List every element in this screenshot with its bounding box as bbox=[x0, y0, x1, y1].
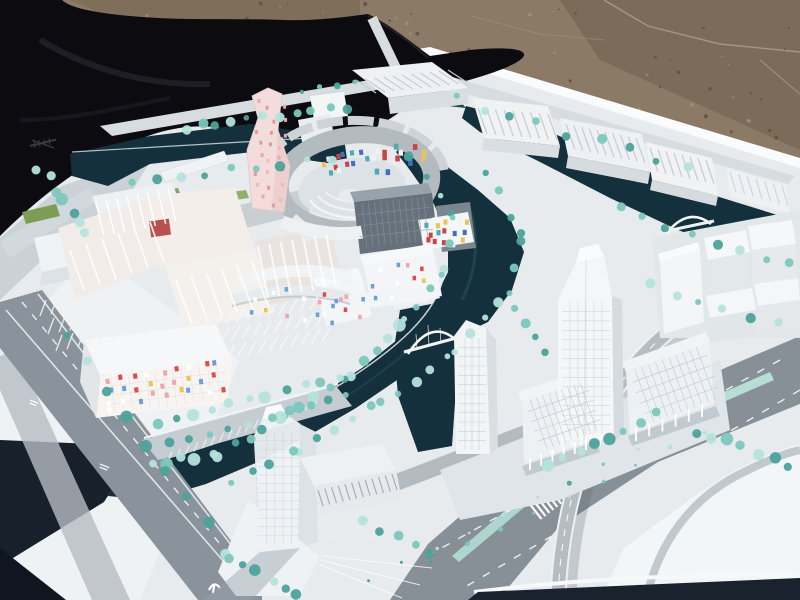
mosaic-tile bbox=[461, 238, 465, 243]
tree bbox=[224, 426, 231, 433]
mosaic-tile bbox=[272, 291, 276, 296]
mosaic-tile bbox=[442, 228, 446, 233]
mosaic-tile bbox=[284, 134, 287, 138]
tree bbox=[493, 297, 503, 307]
tree bbox=[692, 429, 701, 438]
tree bbox=[482, 315, 488, 321]
tree bbox=[695, 299, 701, 305]
tree bbox=[376, 398, 384, 406]
mosaic-tile bbox=[256, 183, 259, 187]
tree bbox=[153, 419, 164, 430]
tree bbox=[187, 409, 199, 421]
mosaic-tile bbox=[382, 154, 387, 160]
gravel-speckle bbox=[363, 2, 367, 6]
mosaic-tile bbox=[160, 383, 165, 389]
tree bbox=[120, 411, 132, 423]
mosaic-tile bbox=[107, 407, 112, 413]
gravel-speckle bbox=[409, 32, 412, 35]
tree bbox=[367, 579, 370, 582]
tree bbox=[495, 186, 503, 194]
tree bbox=[412, 541, 420, 549]
mosaic-tile bbox=[106, 401, 111, 407]
tree bbox=[400, 561, 403, 564]
tree bbox=[375, 527, 384, 536]
tree bbox=[507, 214, 514, 221]
mosaic-tile bbox=[144, 372, 149, 378]
mosaic-tile bbox=[345, 161, 350, 167]
tree bbox=[706, 433, 717, 444]
gravel-speckle bbox=[287, 4, 289, 6]
tree bbox=[199, 118, 209, 128]
tree bbox=[232, 439, 240, 447]
mosaic-tile bbox=[395, 156, 400, 162]
tree bbox=[516, 237, 525, 246]
tree bbox=[668, 444, 673, 449]
tree bbox=[445, 239, 454, 248]
tree bbox=[521, 318, 531, 328]
tree bbox=[430, 560, 434, 564]
tree bbox=[306, 107, 315, 116]
mosaic-tile bbox=[163, 370, 168, 376]
mosaic-tile bbox=[261, 153, 264, 157]
tree bbox=[185, 435, 193, 443]
tree bbox=[359, 356, 369, 366]
tree bbox=[424, 174, 430, 180]
mosaic-tile bbox=[426, 237, 430, 242]
tree bbox=[541, 349, 549, 357]
tree bbox=[511, 305, 518, 312]
tree bbox=[637, 448, 640, 451]
tree bbox=[334, 82, 341, 89]
tree bbox=[367, 401, 376, 410]
tree bbox=[291, 589, 302, 600]
tree bbox=[542, 459, 555, 472]
mosaic-tile bbox=[413, 276, 417, 281]
gravel-speckle bbox=[768, 129, 771, 132]
tree bbox=[315, 378, 325, 388]
mosaic-tile bbox=[339, 297, 343, 302]
mosaic-tile bbox=[344, 308, 348, 313]
mosaic-tile bbox=[322, 162, 327, 168]
mosaic-tile bbox=[221, 387, 226, 393]
mosaic-tile bbox=[199, 379, 204, 385]
tree bbox=[774, 318, 782, 326]
gravel-speckle bbox=[646, 74, 649, 77]
tree bbox=[451, 349, 457, 355]
tree bbox=[128, 179, 135, 186]
gravel-speckle bbox=[747, 119, 751, 123]
tree bbox=[224, 398, 234, 408]
office-tower-main-side bbox=[612, 296, 624, 440]
tree bbox=[270, 577, 278, 585]
mosaic-tile bbox=[164, 392, 169, 398]
tree bbox=[201, 172, 208, 179]
mosaic-tile bbox=[397, 263, 401, 268]
mosaic-tile bbox=[350, 150, 355, 156]
mosaic-tile bbox=[281, 183, 284, 187]
mosaic-tile bbox=[187, 364, 192, 370]
tree bbox=[454, 93, 460, 99]
tree bbox=[638, 213, 645, 220]
gravel-speckle bbox=[702, 27, 705, 30]
gravel-speckle bbox=[750, 92, 752, 94]
gravel-speckle bbox=[677, 71, 681, 75]
tree bbox=[282, 585, 290, 593]
tree bbox=[412, 377, 422, 387]
tree bbox=[661, 224, 669, 232]
gravel-speckle bbox=[570, 69, 572, 71]
tree bbox=[149, 460, 157, 468]
tree bbox=[393, 319, 406, 332]
mosaic-tile bbox=[285, 314, 289, 319]
gravel-speckle bbox=[553, 11, 555, 13]
tree bbox=[652, 408, 661, 417]
tree bbox=[324, 396, 333, 405]
tree bbox=[589, 438, 600, 449]
mosaic-tile bbox=[335, 299, 339, 304]
mosaic-tile bbox=[361, 297, 365, 302]
gravel-speckle bbox=[659, 86, 661, 88]
mosaic-tile bbox=[433, 239, 437, 244]
tree bbox=[532, 334, 539, 341]
tree bbox=[304, 156, 310, 162]
mosaic-tile bbox=[331, 304, 335, 309]
tree bbox=[602, 463, 605, 466]
tree bbox=[383, 334, 393, 344]
mosaic-tile bbox=[422, 149, 427, 155]
mosaic-tile bbox=[420, 267, 424, 272]
mosaic-tile bbox=[422, 279, 426, 284]
tree bbox=[253, 166, 260, 173]
tree bbox=[268, 413, 277, 422]
tree bbox=[438, 193, 444, 199]
mosaic-tile bbox=[254, 172, 257, 176]
mosaic-tile bbox=[139, 399, 144, 405]
mosaic-tile bbox=[371, 155, 376, 161]
tree bbox=[211, 121, 219, 129]
gravel-speckle bbox=[690, 103, 694, 107]
tree bbox=[689, 231, 696, 238]
mosaic-tile bbox=[149, 381, 154, 387]
tree bbox=[703, 431, 707, 435]
gravel-speckle bbox=[774, 136, 778, 140]
gravel-speckle bbox=[569, 79, 572, 82]
mosaic-tile bbox=[272, 120, 275, 124]
tree bbox=[562, 132, 570, 140]
gravel-speckle bbox=[395, 17, 397, 19]
tree bbox=[735, 245, 745, 255]
tree bbox=[177, 172, 187, 182]
mosaic-tile bbox=[270, 131, 273, 135]
mosaic-tile bbox=[258, 99, 261, 103]
tree bbox=[308, 391, 320, 403]
tree bbox=[246, 395, 253, 402]
gravel-speckle bbox=[784, 48, 786, 50]
tree bbox=[483, 170, 489, 176]
mosaic-tile bbox=[172, 379, 177, 385]
tree bbox=[293, 402, 305, 414]
tree bbox=[329, 425, 339, 435]
mosaic-tile bbox=[133, 373, 138, 379]
gravel-speckle bbox=[760, 98, 762, 100]
tree bbox=[559, 454, 567, 462]
tree bbox=[617, 202, 626, 211]
tree bbox=[532, 117, 540, 125]
tree bbox=[337, 374, 344, 381]
mosaic-tile bbox=[444, 220, 448, 225]
tree bbox=[567, 481, 572, 486]
tree bbox=[207, 431, 214, 438]
mosaic-tile bbox=[386, 169, 391, 175]
gravel-speckle bbox=[553, 52, 556, 55]
mosaic-tile bbox=[421, 156, 426, 162]
gravel-speckle bbox=[416, 32, 420, 36]
mosaic-tile bbox=[396, 281, 400, 286]
tree bbox=[721, 433, 734, 446]
tree bbox=[653, 158, 660, 165]
gravel-speckle bbox=[389, 19, 392, 22]
mosaic-tile bbox=[174, 366, 179, 372]
mosaic-tile bbox=[465, 220, 469, 225]
gravel-speckle bbox=[721, 56, 723, 58]
tree bbox=[176, 452, 185, 461]
tree bbox=[746, 313, 756, 323]
tree bbox=[753, 449, 764, 460]
tree bbox=[307, 401, 316, 410]
mosaic-tile bbox=[436, 223, 440, 228]
tree bbox=[210, 450, 218, 458]
tree bbox=[258, 391, 270, 403]
tree bbox=[532, 511, 535, 514]
tree bbox=[226, 117, 236, 127]
mosaic-tile bbox=[359, 149, 364, 155]
gravel-speckle bbox=[669, 59, 671, 61]
gravel-speckle bbox=[730, 130, 733, 133]
mosaic-tile bbox=[250, 310, 254, 315]
mosaic-tile bbox=[437, 230, 441, 235]
tree bbox=[395, 391, 401, 397]
mosaic-tile bbox=[266, 170, 269, 174]
tree bbox=[75, 218, 85, 228]
tree bbox=[626, 143, 635, 152]
tree bbox=[313, 434, 321, 442]
mosaic-tile bbox=[150, 390, 155, 396]
mosaic-tile bbox=[375, 148, 380, 154]
mosaic-tile bbox=[302, 296, 306, 301]
gravel-speckle bbox=[704, 114, 708, 118]
tree bbox=[209, 406, 216, 413]
tree bbox=[327, 103, 335, 111]
tree bbox=[735, 441, 744, 450]
mosaic-tile bbox=[266, 159, 269, 163]
mosaic-tile bbox=[379, 268, 383, 273]
tree bbox=[577, 447, 586, 456]
mosaic-tile bbox=[394, 144, 399, 150]
mosaic-tile bbox=[375, 169, 380, 175]
gravel-speckle bbox=[708, 87, 711, 90]
tree bbox=[182, 492, 191, 501]
tree bbox=[317, 84, 322, 89]
tree bbox=[188, 453, 201, 466]
tree bbox=[450, 215, 456, 221]
tree bbox=[56, 193, 68, 205]
tree bbox=[224, 554, 234, 564]
mosaic-tile bbox=[264, 308, 268, 313]
mosaic-tile bbox=[272, 204, 275, 208]
right-slab bbox=[660, 250, 704, 334]
tree bbox=[160, 466, 170, 476]
tree bbox=[32, 166, 41, 175]
mosaic-tile bbox=[278, 156, 281, 160]
tree bbox=[620, 428, 627, 435]
tree bbox=[536, 495, 539, 498]
tree bbox=[244, 115, 250, 121]
mosaic-tile bbox=[365, 156, 370, 162]
tree bbox=[173, 415, 180, 422]
mosaic-tile bbox=[399, 150, 404, 156]
gravel-speckle bbox=[728, 64, 730, 66]
tree bbox=[785, 258, 794, 267]
tree bbox=[373, 346, 382, 355]
mosaic-tile bbox=[285, 287, 289, 292]
mosaic-tile bbox=[337, 167, 342, 173]
gravel-speckle bbox=[732, 96, 734, 98]
mosaic-tile bbox=[253, 297, 257, 302]
mosaic-tile bbox=[374, 296, 378, 301]
gravel-speckle bbox=[788, 27, 790, 29]
mosaic-tile bbox=[186, 375, 191, 381]
tree bbox=[245, 421, 252, 428]
mosaic-tile bbox=[179, 387, 184, 393]
tree bbox=[597, 134, 607, 144]
mosaic-tile bbox=[259, 141, 262, 145]
tree bbox=[425, 550, 434, 559]
tree bbox=[481, 107, 489, 115]
tree bbox=[285, 406, 295, 416]
mosaic-tile bbox=[336, 154, 341, 160]
mosaic-tile bbox=[105, 379, 110, 385]
tree bbox=[275, 112, 285, 122]
gravel-speckle bbox=[405, 21, 409, 25]
tree bbox=[636, 418, 646, 428]
mosaic-tile bbox=[186, 387, 191, 393]
tree bbox=[349, 415, 356, 422]
tree bbox=[102, 387, 112, 397]
mosaic-tile bbox=[330, 321, 334, 326]
mosaic-tile bbox=[457, 218, 461, 223]
mosaic-tile bbox=[278, 146, 281, 150]
tree bbox=[394, 531, 404, 541]
mosaic-tile bbox=[424, 223, 428, 228]
tree bbox=[47, 171, 56, 180]
tree bbox=[257, 425, 267, 435]
gravel-speckle bbox=[145, 14, 148, 17]
tree bbox=[328, 156, 337, 165]
mosaic-tile bbox=[269, 142, 272, 146]
cube-face bbox=[758, 300, 800, 334]
mosaic-tile bbox=[266, 106, 269, 110]
gravel-speckle bbox=[410, 13, 412, 15]
tree bbox=[264, 459, 274, 469]
tree bbox=[64, 332, 71, 339]
tree bbox=[505, 112, 514, 121]
mosaic-tile bbox=[358, 315, 362, 320]
mosaic-tile bbox=[413, 144, 418, 150]
mosaic-tile bbox=[323, 312, 327, 317]
tree bbox=[139, 440, 152, 453]
mosaic-tile bbox=[463, 230, 467, 235]
tree bbox=[258, 111, 267, 120]
tree bbox=[152, 174, 162, 184]
tree bbox=[327, 383, 335, 391]
tree bbox=[343, 392, 349, 398]
tree bbox=[498, 527, 503, 532]
mosaic-tile bbox=[208, 390, 213, 396]
mosaic-tile bbox=[211, 372, 216, 378]
tree bbox=[165, 438, 175, 448]
mosaic-tile bbox=[267, 186, 270, 190]
tree bbox=[602, 480, 606, 484]
tree bbox=[80, 228, 89, 237]
tree bbox=[83, 357, 92, 366]
tree bbox=[684, 162, 693, 171]
mosaic-tile bbox=[406, 263, 410, 268]
gravel-speckle bbox=[574, 12, 577, 15]
mosaic-tile bbox=[279, 198, 282, 202]
tree bbox=[249, 467, 257, 475]
tree bbox=[718, 305, 726, 313]
tree bbox=[70, 209, 80, 219]
mosaic-tile bbox=[262, 195, 265, 199]
tree bbox=[294, 109, 302, 117]
mosaic-tile bbox=[429, 233, 433, 238]
mosaic-tile bbox=[134, 387, 139, 393]
tree bbox=[673, 292, 682, 301]
tree bbox=[247, 435, 256, 444]
tree bbox=[465, 328, 475, 338]
mosaic-tile bbox=[390, 295, 394, 300]
tree bbox=[645, 278, 655, 288]
gravel-speckle bbox=[558, 9, 560, 11]
tree bbox=[343, 105, 353, 115]
mosaic-tile bbox=[329, 170, 334, 176]
tree bbox=[249, 564, 261, 576]
tree bbox=[425, 365, 434, 374]
gravel-speckle bbox=[259, 2, 263, 6]
tree bbox=[289, 446, 298, 455]
tree bbox=[404, 151, 414, 161]
mosaic-tile bbox=[371, 284, 375, 289]
tree bbox=[784, 463, 792, 471]
tree bbox=[239, 561, 246, 568]
tree bbox=[763, 256, 770, 263]
tree bbox=[283, 385, 292, 394]
tree bbox=[517, 229, 525, 237]
tree bbox=[358, 516, 368, 526]
tree bbox=[426, 284, 434, 292]
tree bbox=[468, 532, 471, 535]
gravel-speckle bbox=[279, 6, 281, 8]
mosaic-tile bbox=[122, 386, 127, 392]
tree bbox=[603, 433, 615, 445]
tree bbox=[203, 517, 215, 529]
tree bbox=[275, 161, 285, 171]
mosaic-tile bbox=[323, 292, 327, 297]
mosaic-tile bbox=[340, 152, 345, 158]
mosaic-tile bbox=[283, 105, 286, 109]
tree bbox=[568, 495, 571, 498]
tree bbox=[413, 304, 420, 311]
